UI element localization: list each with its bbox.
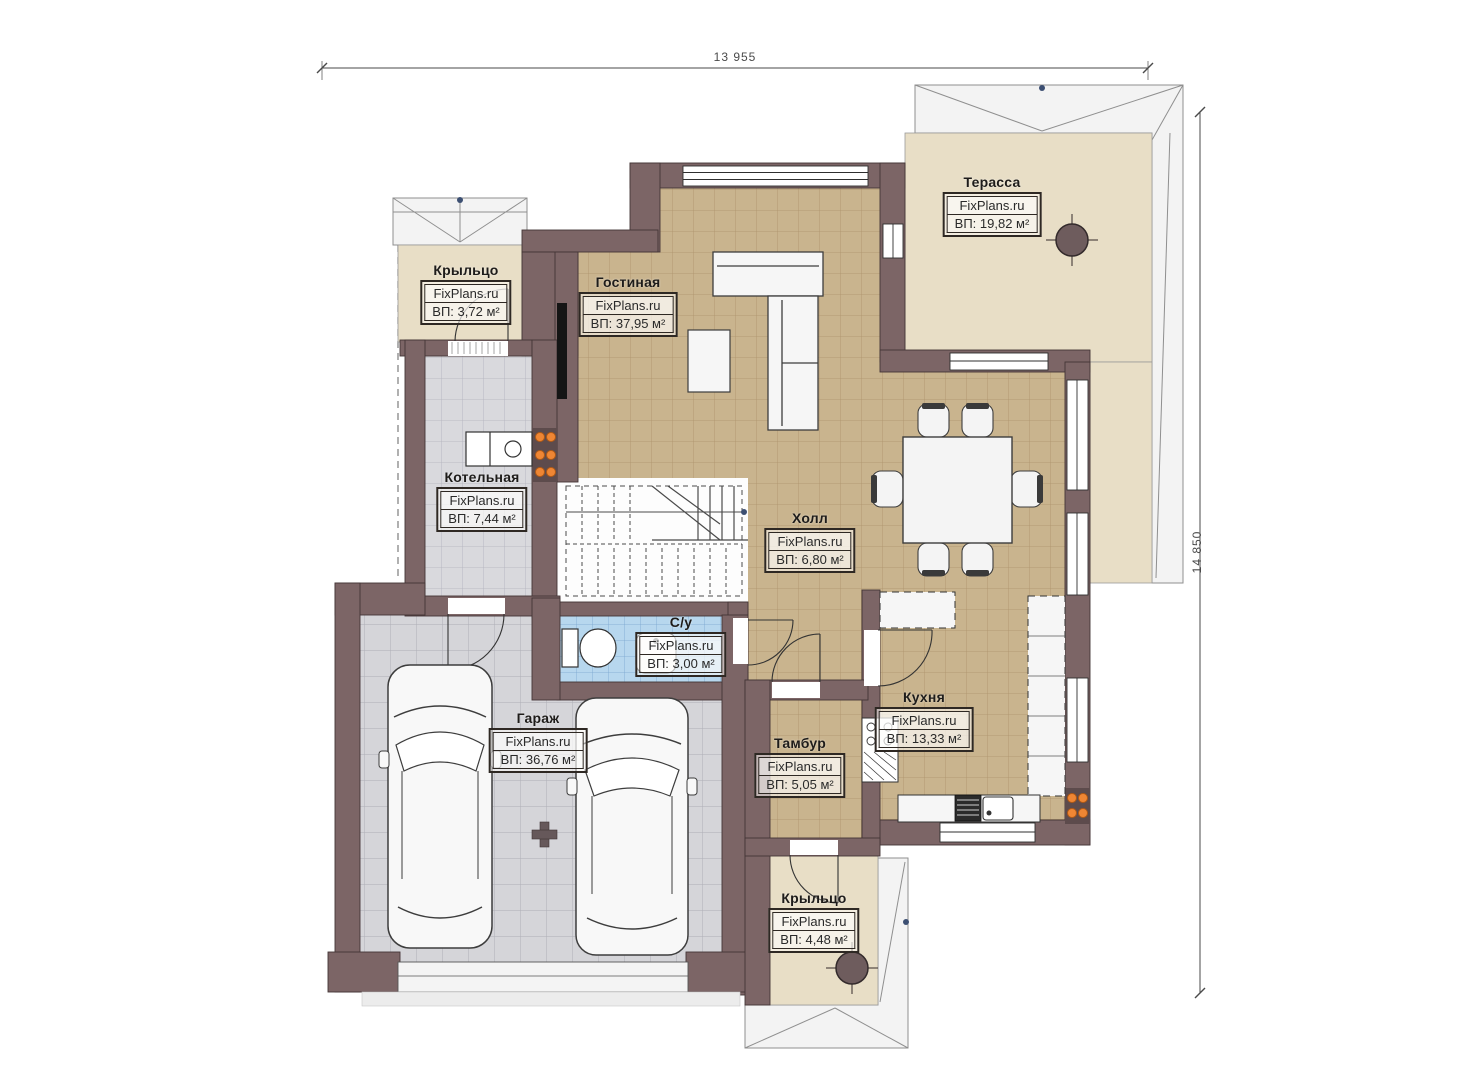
floor-plan-page: 13 955 14 850 Терасса FixPlans.ru ВП: 19… <box>0 0 1473 1080</box>
room-label-porch-bottom: Крыльцо FixPlans.ru ВП: 4,48 м² <box>768 890 859 953</box>
kitchen-radiator-wall <box>1065 788 1090 824</box>
room-area: ВП: 3,72 м² <box>424 303 507 321</box>
room-label-kitchen: Кухня FixPlans.ru ВП: 13,33 м² <box>875 689 974 752</box>
room-name: Тамбур <box>754 735 845 751</box>
dimension-right-label: 14 850 <box>1190 531 1204 574</box>
room-area: ВП: 6,80 м² <box>768 551 851 569</box>
watermark-box: FixPlans.ru ВП: 13,33 м² <box>875 707 974 752</box>
dimension-top-label: 13 955 <box>714 50 757 64</box>
room-name: Гостиная <box>579 274 678 290</box>
room-name: Кухня <box>875 689 974 705</box>
room-label-tambour: Тамбур FixPlans.ru ВП: 5,05 м² <box>754 735 845 798</box>
watermark-text: FixPlans.ru <box>639 636 722 655</box>
room-area: ВП: 4,48 м² <box>772 931 855 949</box>
watermark-box: FixPlans.ru ВП: 6,80 м² <box>764 528 855 573</box>
room-label-hall: Холл FixPlans.ru ВП: 6,80 м² <box>764 510 855 573</box>
watermark-text: FixPlans.ru <box>772 912 855 931</box>
flue-block <box>557 303 567 399</box>
watermark-text: FixPlans.ru <box>947 196 1038 215</box>
room-area: ВП: 3,00 м² <box>639 655 722 673</box>
dish-dryer-icon <box>955 795 981 821</box>
watermark-box: FixPlans.ru ВП: 19,82 м² <box>943 192 1042 237</box>
watermark-text: FixPlans.ru <box>440 491 523 510</box>
watermark-box: FixPlans.ru ВП: 4,48 м² <box>768 908 859 953</box>
toilet-icon <box>562 629 616 667</box>
garage-door <box>362 962 740 1006</box>
room-name: Холл <box>764 510 855 526</box>
watermark-box: FixPlans.ru ВП: 5,05 м² <box>754 753 845 798</box>
room-label-terrace: Терасса FixPlans.ru ВП: 19,82 м² <box>943 174 1042 237</box>
room-label-garage: Гараж FixPlans.ru ВП: 36,76 м² <box>489 710 588 773</box>
room-area: ВП: 13,33 м² <box>879 730 970 748</box>
watermark-box: FixPlans.ru ВП: 3,72 м² <box>420 280 511 325</box>
watermark-text: FixPlans.ru <box>424 284 507 303</box>
room-name: С/у <box>635 614 726 630</box>
watermark-text: FixPlans.ru <box>879 711 970 730</box>
porch-top-roof <box>393 198 527 245</box>
room-area: ВП: 36,76 м² <box>493 751 584 769</box>
room-label-boiler: Котельная FixPlans.ru ВП: 7,44 м² <box>436 469 527 532</box>
terrace-floor <box>905 133 1152 362</box>
room-area: ВП: 37,95 м² <box>583 315 674 333</box>
room-name: Крыльцо <box>768 890 859 906</box>
room-name: Терасса <box>943 174 1042 190</box>
room-label-bath: С/у FixPlans.ru ВП: 3,00 м² <box>635 614 726 677</box>
car-1-icon <box>379 665 501 948</box>
room-name: Крыльцо <box>420 262 511 278</box>
room-area: ВП: 7,44 м² <box>440 510 523 528</box>
room-name: Гараж <box>489 710 588 726</box>
terrace-side-strip <box>1090 362 1152 583</box>
room-area: ВП: 5,05 м² <box>758 776 841 794</box>
floor-plan-drawing <box>0 0 1473 1080</box>
room-area: ВП: 19,82 м² <box>947 215 1038 233</box>
watermark-text: FixPlans.ru <box>758 757 841 776</box>
watermark-box: FixPlans.ru ВП: 36,76 м² <box>489 728 588 773</box>
room-label-porch-top: Крыльцо FixPlans.ru ВП: 3,72 м² <box>420 262 511 325</box>
kitchen-sink-icon <box>983 797 1013 820</box>
watermark-box: FixPlans.ru ВП: 37,95 м² <box>579 292 678 337</box>
watermark-box: FixPlans.ru ВП: 3,00 м² <box>635 632 726 677</box>
boiler-unit <box>466 432 532 466</box>
room-label-living: Гостиная FixPlans.ru ВП: 37,95 м² <box>579 274 678 337</box>
watermark-box: FixPlans.ru ВП: 7,44 м² <box>436 487 527 532</box>
watermark-text: FixPlans.ru <box>493 732 584 751</box>
watermark-text: FixPlans.ru <box>583 296 674 315</box>
watermark-text: FixPlans.ru <box>768 532 851 551</box>
coffee-table <box>688 330 730 392</box>
room-name: Котельная <box>436 469 527 485</box>
